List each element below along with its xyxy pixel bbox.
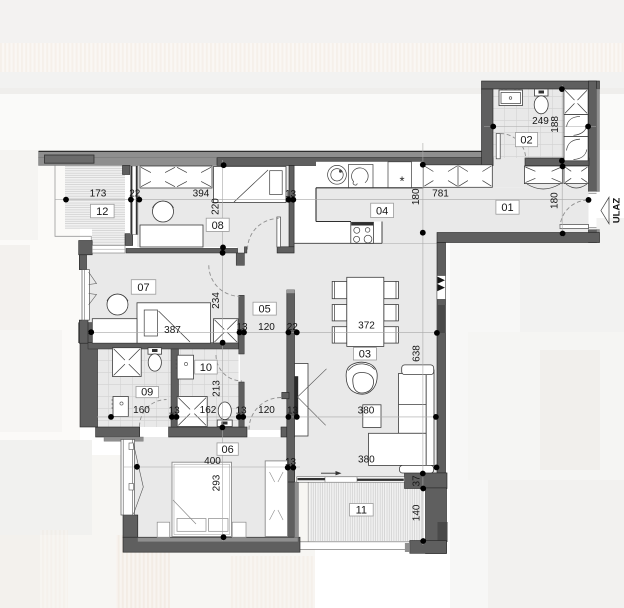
svg-text:372: 372: [358, 321, 375, 332]
svg-text:03: 03: [359, 349, 371, 361]
svg-text:05: 05: [258, 304, 270, 316]
svg-text:07: 07: [137, 282, 149, 294]
svg-text:140: 140: [411, 504, 422, 521]
svg-text:213: 213: [212, 380, 223, 397]
svg-text:380: 380: [358, 406, 375, 417]
svg-text:180: 180: [411, 188, 422, 205]
svg-text:ULAZ: ULAZ: [611, 198, 622, 224]
svg-text:13: 13: [236, 322, 248, 333]
svg-text:380: 380: [358, 455, 375, 466]
svg-text:781: 781: [432, 189, 449, 200]
svg-text:13: 13: [285, 457, 297, 468]
svg-text:162: 162: [200, 405, 217, 416]
svg-text:173: 173: [90, 189, 107, 200]
svg-text:11: 11: [356, 505, 367, 517]
svg-text:400: 400: [204, 456, 221, 467]
svg-text:180: 180: [550, 192, 561, 209]
svg-text:13: 13: [287, 406, 299, 417]
svg-text:13: 13: [285, 189, 297, 200]
svg-text:160: 160: [133, 405, 150, 416]
svg-text:120: 120: [258, 405, 275, 416]
svg-text:220: 220: [211, 198, 222, 215]
svg-text:22: 22: [287, 322, 299, 333]
svg-text:22: 22: [129, 189, 141, 200]
svg-text:13: 13: [169, 406, 181, 417]
svg-text:249: 249: [532, 116, 549, 127]
svg-text:08: 08: [212, 220, 224, 232]
svg-text:37: 37: [411, 475, 422, 487]
svg-text:394: 394: [193, 189, 210, 200]
svg-text:188: 188: [550, 116, 561, 133]
svg-text:06: 06: [221, 444, 233, 456]
svg-text:12: 12: [96, 206, 108, 218]
svg-text:04: 04: [376, 205, 388, 217]
svg-text:638: 638: [411, 345, 422, 362]
svg-text:10: 10: [200, 362, 212, 374]
svg-text:09: 09: [141, 387, 153, 399]
svg-text:234: 234: [211, 292, 222, 309]
svg-text:120: 120: [258, 322, 275, 333]
svg-text:13: 13: [235, 406, 247, 417]
svg-text:*: *: [400, 174, 405, 189]
svg-text:01: 01: [501, 202, 513, 214]
svg-text:387: 387: [164, 325, 181, 336]
svg-text:02: 02: [520, 135, 532, 147]
svg-text:293: 293: [212, 474, 223, 491]
